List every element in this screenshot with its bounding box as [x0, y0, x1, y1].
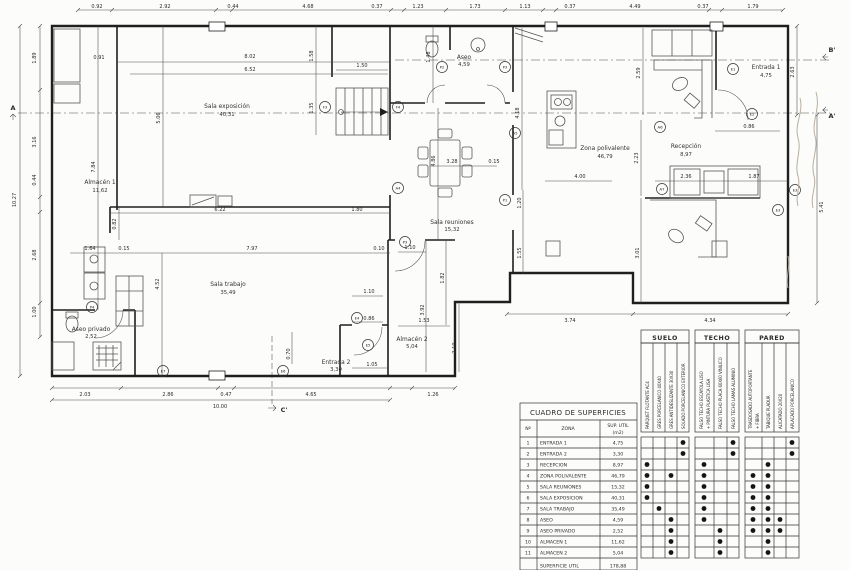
dim: 2.86 [162, 392, 173, 398]
marker-label: A4 [395, 186, 401, 191]
marker-label: F4 [396, 105, 401, 110]
material-column-label: FALSO TECHO LAMAS ALUMINIO [731, 368, 736, 429]
dim: 0.37 [371, 4, 382, 10]
room-area: 4,75 [760, 73, 772, 79]
row-zone: ALMACEN 2 [540, 551, 567, 557]
marker-label: A6 [657, 125, 663, 130]
dim: 6.22 [214, 207, 225, 213]
marker-label: E4 [355, 316, 360, 321]
room-area: 15,32 [444, 227, 459, 233]
total-label: SUPERFICIE UTIL [540, 564, 579, 570]
marker-label: E7 [161, 369, 166, 374]
total-value: 178,88 [610, 564, 626, 570]
row-number: 1 [527, 441, 530, 447]
material-dot [702, 506, 707, 511]
dim: 7.84 [91, 161, 97, 172]
dim: 3.16 [32, 136, 38, 147]
dim: 1.53 [418, 318, 429, 324]
dim: 1.58 [309, 50, 315, 61]
material-column-label: GRES PORCELANICO 40X40 [657, 376, 662, 429]
row-number: 7 [527, 507, 530, 513]
room-name: Zona polivalente [580, 146, 630, 152]
col-header-zona: ZONA [561, 426, 575, 432]
marker-label: E6 [281, 369, 286, 374]
dim: 1.82 [440, 272, 446, 283]
furniture [52, 29, 760, 370]
material-dot [766, 528, 771, 533]
dim: 1.20 [517, 197, 523, 208]
material-dot [702, 462, 707, 467]
material-dot [751, 517, 756, 522]
room-area: 2,52 [85, 334, 97, 340]
row-number: 2 [527, 452, 530, 458]
material-column-label: TRASDOSADO AUTOPORTANTE [748, 369, 753, 430]
row-area: 8,97 [613, 463, 623, 469]
dim: 10.00 [213, 404, 227, 410]
group-header-techo: TECHO [704, 335, 730, 342]
room-name: Almacén 2 [396, 336, 427, 343]
dim: 10.27 [12, 193, 18, 207]
reference-markers: P2P3F4F3A4A5A6A7P1E1E2E3E3E4E5E6E7P4P3 [87, 62, 801, 377]
material-dot [731, 440, 736, 445]
row-zone: SALA TRABAJO [540, 507, 575, 513]
row-zone: ALMACEN 1 [540, 540, 567, 546]
table-title: CUADRO DE SUPERFICIES [530, 409, 626, 417]
material-dot [645, 462, 650, 467]
material-column-label: GRES ANTIDESLIZANTE 30X30 [669, 370, 674, 429]
material-dot [702, 473, 707, 478]
room-area: 4,59 [458, 62, 470, 68]
dim: 0.44 [32, 174, 38, 185]
row-zone: ASEO [540, 518, 553, 524]
dim: 2.03 [79, 392, 90, 398]
material-dot [645, 495, 650, 500]
walls [52, 22, 788, 380]
room-name: Sala trabajo [210, 282, 246, 288]
row-area: 40,31 [611, 496, 624, 502]
marker-label: P2 [440, 65, 445, 70]
dim: 1.10 [404, 245, 415, 251]
material-dot [669, 539, 674, 544]
material-dot [702, 517, 707, 522]
material-dot [751, 473, 756, 478]
material-dot [681, 451, 686, 456]
room-name: Entrada 2 [322, 360, 351, 366]
room-area: 5,04 [406, 344, 418, 350]
row-zone: SALA REUNIONES [540, 485, 581, 491]
dim: 2.92 [159, 4, 170, 10]
dim: 6.52 [244, 67, 255, 73]
col-header-n: Nº [525, 426, 531, 432]
dim: 1.87 [748, 174, 759, 180]
material-dot [718, 528, 723, 533]
group-header-suelo: SUELO [652, 335, 678, 342]
material-column-label: ALICATADO 20X20 [778, 393, 783, 429]
dim: 4.65 [305, 392, 316, 398]
dim: 1.10 [363, 289, 374, 295]
material-column-label: TABIQUE PLADUR [766, 395, 771, 430]
section-label-a: A [10, 104, 15, 112]
dim: 0.82 [112, 218, 118, 229]
row-zone: ASEO PRIVADO [540, 529, 576, 535]
dim: 0.86 [743, 124, 754, 130]
marker-label: E3 [776, 208, 781, 213]
dim: 1.64 [84, 246, 95, 252]
room-name: Sala exposición [204, 103, 250, 110]
room-name: Aseo privado [72, 327, 111, 333]
row-number: 11 [525, 551, 531, 557]
material-column-label: FALSO TECHO PLACA 60X60 VINILICO [718, 357, 723, 429]
dim: 0.37 [564, 4, 575, 10]
dim: 1.48 [426, 51, 432, 62]
dim: 0.86 [363, 316, 374, 322]
material-dot [790, 451, 795, 456]
marker-label: F3 [323, 105, 328, 110]
material-dot [766, 539, 771, 544]
room-area: 8,97 [680, 152, 692, 158]
material-dot [766, 506, 771, 511]
row-zone: ENTRADA 1 [540, 441, 567, 447]
row-area: 15,32 [611, 485, 624, 491]
staircase [336, 88, 388, 135]
row-number: 10 [525, 540, 531, 546]
dim: 1.26 [427, 392, 438, 398]
row-zone: SALA EXPOSICION [540, 496, 583, 502]
row-area: 4,59 [613, 518, 623, 524]
material-dot [669, 528, 674, 533]
material-dot [751, 495, 756, 500]
material-dot [657, 506, 662, 511]
dim: 8.02 [244, 54, 255, 60]
row-area: 46,79 [611, 474, 624, 480]
group-header-pared: PARED [759, 335, 785, 342]
row-area: 11,62 [611, 540, 624, 546]
dim: 5.06 [156, 112, 162, 123]
material-dot [681, 440, 686, 445]
material-dot [645, 484, 650, 489]
material-dot [669, 517, 674, 522]
material-dot [778, 528, 783, 533]
dim: 1.89 [32, 52, 38, 63]
dim: 3.28 [446, 159, 457, 165]
material-dot [702, 484, 707, 489]
material-dot [766, 550, 771, 555]
row-zone: ZONA POLIVALENTE [540, 474, 587, 480]
section-lines [18, 60, 830, 404]
dim: 3.74 [564, 318, 575, 324]
row-number: 3 [527, 463, 530, 469]
dim: 2.36 [680, 174, 691, 180]
marker-label: P1 [503, 198, 508, 203]
material-dot [702, 495, 707, 500]
room-name: Aseo [457, 55, 472, 61]
room-name: Almacén 1 [84, 179, 115, 186]
col-header-sup-units: (m2) [613, 430, 624, 436]
dim: 0.37 [697, 4, 708, 10]
material-dot [751, 528, 756, 533]
dim: 1.80 [351, 207, 362, 213]
row-area: 3,30 [613, 452, 623, 458]
dim: 1.13 [519, 4, 530, 10]
section-label-c2: C' [281, 406, 288, 414]
dim: 1.05 [366, 362, 377, 368]
dim: 2.10 [452, 342, 458, 353]
row-zone: RECEPCION [540, 463, 568, 469]
marker-label: E3 [793, 188, 798, 193]
material-dot [645, 473, 650, 478]
dim: 0.15 [118, 246, 129, 252]
room-area: 35,49 [220, 290, 235, 296]
dim: 1.00 [32, 306, 38, 317]
room-name: Sala reuniones [430, 220, 474, 226]
room-area: 40,31 [219, 112, 234, 118]
marker-label: A7 [659, 187, 665, 192]
dim: 1.35 [309, 102, 315, 113]
material-dot [790, 440, 795, 445]
dim: 1.50 [356, 63, 367, 69]
dim: 0.70 [286, 348, 292, 359]
material-dot [766, 473, 771, 478]
dim: 0.92 [91, 4, 102, 10]
dim: 4.18 [515, 107, 521, 118]
row-area: 2,52 [613, 529, 623, 535]
table-rows: 1ENTRADA 14,752ENTRADA 23,303RECEPCION8,… [525, 440, 794, 569]
dim: 1.23 [412, 4, 423, 10]
dim: 4.68 [302, 4, 313, 10]
material-column-label: + PINTURA PLASTICA LISA [706, 379, 711, 429]
room-area: 3,30 [330, 367, 342, 373]
row-area: 35,49 [611, 507, 624, 513]
floor-plan-sheet: 0.92 2.92 0.44 4.68 0.37 1.23 1.73 1.13 … [0, 0, 850, 570]
dim: 5.41 [819, 201, 825, 212]
dim: 4.86 [431, 155, 437, 166]
material-dot [766, 484, 771, 489]
material-dot [778, 517, 783, 522]
dim: 7.97 [246, 246, 257, 252]
material-dot [718, 539, 723, 544]
section-label-a2: A' [828, 112, 835, 120]
material-column-label: APLACADO PORCELANICO [790, 379, 795, 429]
material-dot [669, 550, 674, 555]
material-dot [751, 484, 756, 489]
row-number: 8 [527, 518, 530, 524]
dim: 0.47 [220, 392, 231, 398]
row-number: 6 [527, 496, 530, 502]
dim: 3.92 [420, 304, 426, 315]
material-dot [718, 550, 723, 555]
material-dot [751, 506, 756, 511]
material-column-label: SOLADO PORCELANICO EXTERIOR [681, 363, 686, 429]
dim: 0.91 [93, 55, 104, 61]
dim: 0.10 [373, 246, 384, 252]
marker-label: P3 [503, 65, 508, 70]
row-number: 4 [527, 474, 530, 480]
row-number: 5 [527, 485, 530, 491]
material-dot [766, 495, 771, 500]
dim: 4.49 [629, 4, 640, 10]
marker-label: E1 [731, 67, 736, 72]
floor-plan-drawing: 0.92 2.92 0.44 4.68 0.37 1.23 1.73 1.13 … [0, 0, 850, 570]
material-dot [766, 462, 771, 467]
row-area: 4,75 [613, 441, 623, 447]
marker-label: E2 [750, 112, 755, 117]
room-name: Entrada 1 [752, 65, 781, 71]
dim: 2.63 [790, 66, 796, 77]
marker-label: P4 [90, 305, 95, 310]
dim: 2.23 [634, 152, 640, 163]
dim: 0.44 [227, 4, 238, 10]
room-area: 11,62 [92, 188, 107, 194]
marker-label: E5 [366, 343, 371, 348]
dim: 1.55 [517, 247, 523, 258]
dim: 1.79 [747, 4, 758, 10]
section-label-b2: B' [829, 46, 836, 54]
material-column-label: + FIBRA [755, 413, 760, 429]
marker-label: P3 [403, 240, 408, 245]
material-dot [766, 517, 771, 522]
dim: 4.52 [155, 278, 161, 289]
col-header-sup: SUP. UTIL [607, 423, 629, 429]
dim: 1.73 [469, 4, 480, 10]
dim: 4.34 [704, 318, 715, 324]
room-area: 46,79 [597, 154, 612, 160]
room-name: Recepción [671, 143, 702, 150]
row-number: 9 [527, 529, 530, 535]
dim: 3.01 [635, 247, 641, 258]
material-column-label: PARQUET FLOTANTE AC4 [645, 381, 650, 429]
material-dot [731, 451, 736, 456]
row-area: 5,04 [613, 551, 623, 557]
dim: 2.59 [636, 67, 642, 78]
material-column-label: FALSO TECHO ESCAYOLA LISO [699, 371, 704, 429]
dim: 0.15 [488, 159, 499, 165]
material-dot [669, 473, 674, 478]
dim: 4.00 [574, 174, 585, 180]
dim: 2.68 [32, 249, 38, 260]
row-zone: ENTRADA 2 [540, 452, 567, 458]
marker-label: A5 [512, 131, 518, 136]
